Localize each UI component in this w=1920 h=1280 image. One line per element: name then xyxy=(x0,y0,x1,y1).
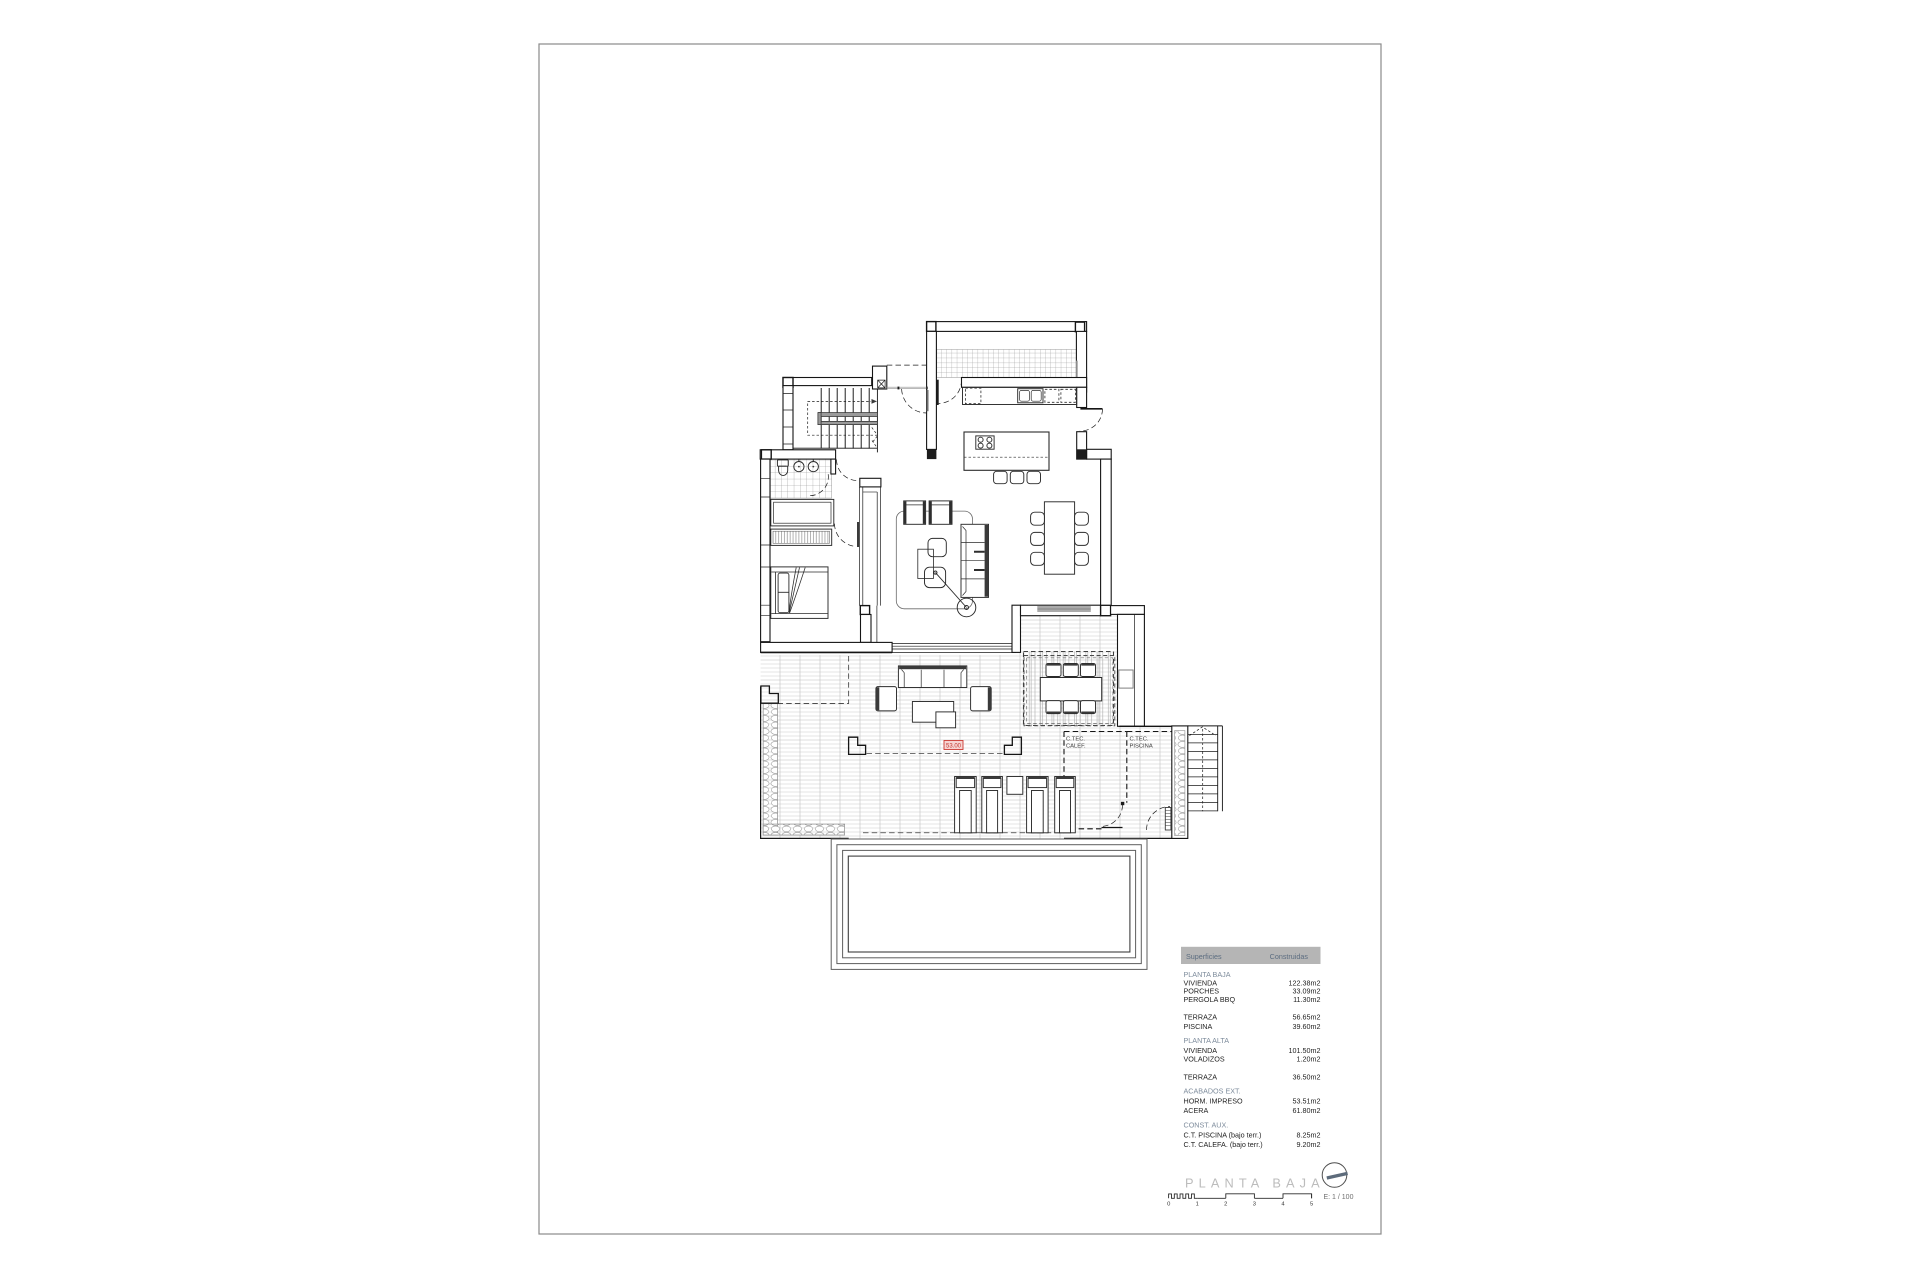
svg-text:56.65m2: 56.65m2 xyxy=(1293,1013,1321,1022)
svg-text:61.80m2: 61.80m2 xyxy=(1293,1106,1321,1115)
svg-text:Construidas: Construidas xyxy=(1270,952,1309,961)
svg-text:TERRAZA: TERRAZA xyxy=(1184,1013,1218,1022)
svg-text:VOLADIZOS: VOLADIZOS xyxy=(1184,1055,1225,1064)
svg-text:CONST. AUX.: CONST. AUX. xyxy=(1184,1120,1229,1129)
svg-text:ACABADOS EXT.: ACABADOS EXT. xyxy=(1184,1087,1241,1096)
svg-text:9.20m2: 9.20m2 xyxy=(1297,1140,1321,1149)
svg-text:TERRAZA: TERRAZA xyxy=(1184,1072,1218,1081)
svg-text:0: 0 xyxy=(1167,1202,1170,1208)
svg-text:CALEF.: CALEF. xyxy=(1066,744,1086,750)
svg-text:1.20m2: 1.20m2 xyxy=(1297,1055,1321,1064)
svg-text:ACERA: ACERA xyxy=(1184,1106,1209,1115)
svg-text:PLANTA ALTA: PLANTA ALTA xyxy=(1184,1036,1230,1045)
svg-text:HORM. IMPRESO: HORM. IMPRESO xyxy=(1184,1097,1244,1106)
svg-text:8.25m2: 8.25m2 xyxy=(1297,1131,1321,1140)
svg-text:36.50m2: 36.50m2 xyxy=(1293,1072,1321,1081)
svg-text:PERGOLA BBQ: PERGOLA BBQ xyxy=(1184,995,1236,1004)
svg-text:PLANTA BAJA: PLANTA BAJA xyxy=(1185,1176,1325,1191)
svg-text:53.51m2: 53.51m2 xyxy=(1293,1097,1321,1106)
svg-text:53.00: 53.00 xyxy=(946,743,962,749)
svg-text:1: 1 xyxy=(1196,1202,1199,1208)
svg-text:3: 3 xyxy=(1253,1202,1256,1208)
svg-text:Superficies: Superficies xyxy=(1186,952,1222,961)
svg-text:11.30m2: 11.30m2 xyxy=(1293,995,1320,1004)
svg-text:39.60m2: 39.60m2 xyxy=(1293,1022,1321,1031)
svg-text:C.T. CALEFA. (bajo terr.): C.T. CALEFA. (bajo terr.) xyxy=(1184,1140,1263,1149)
svg-text:C.TEC.: C.TEC. xyxy=(1066,736,1085,742)
svg-text:5: 5 xyxy=(1310,1202,1313,1208)
svg-text:E: 1 / 100: E: 1 / 100 xyxy=(1324,1194,1354,1201)
svg-text:C.T. PISCINA (bajo terr.): C.T. PISCINA (bajo terr.) xyxy=(1184,1131,1262,1140)
svg-text:2: 2 xyxy=(1224,1202,1227,1208)
svg-text:PISCINA: PISCINA xyxy=(1184,1022,1213,1031)
svg-text:C.TEC.: C.TEC. xyxy=(1130,736,1149,742)
svg-text:PISCINA: PISCINA xyxy=(1130,744,1153,750)
